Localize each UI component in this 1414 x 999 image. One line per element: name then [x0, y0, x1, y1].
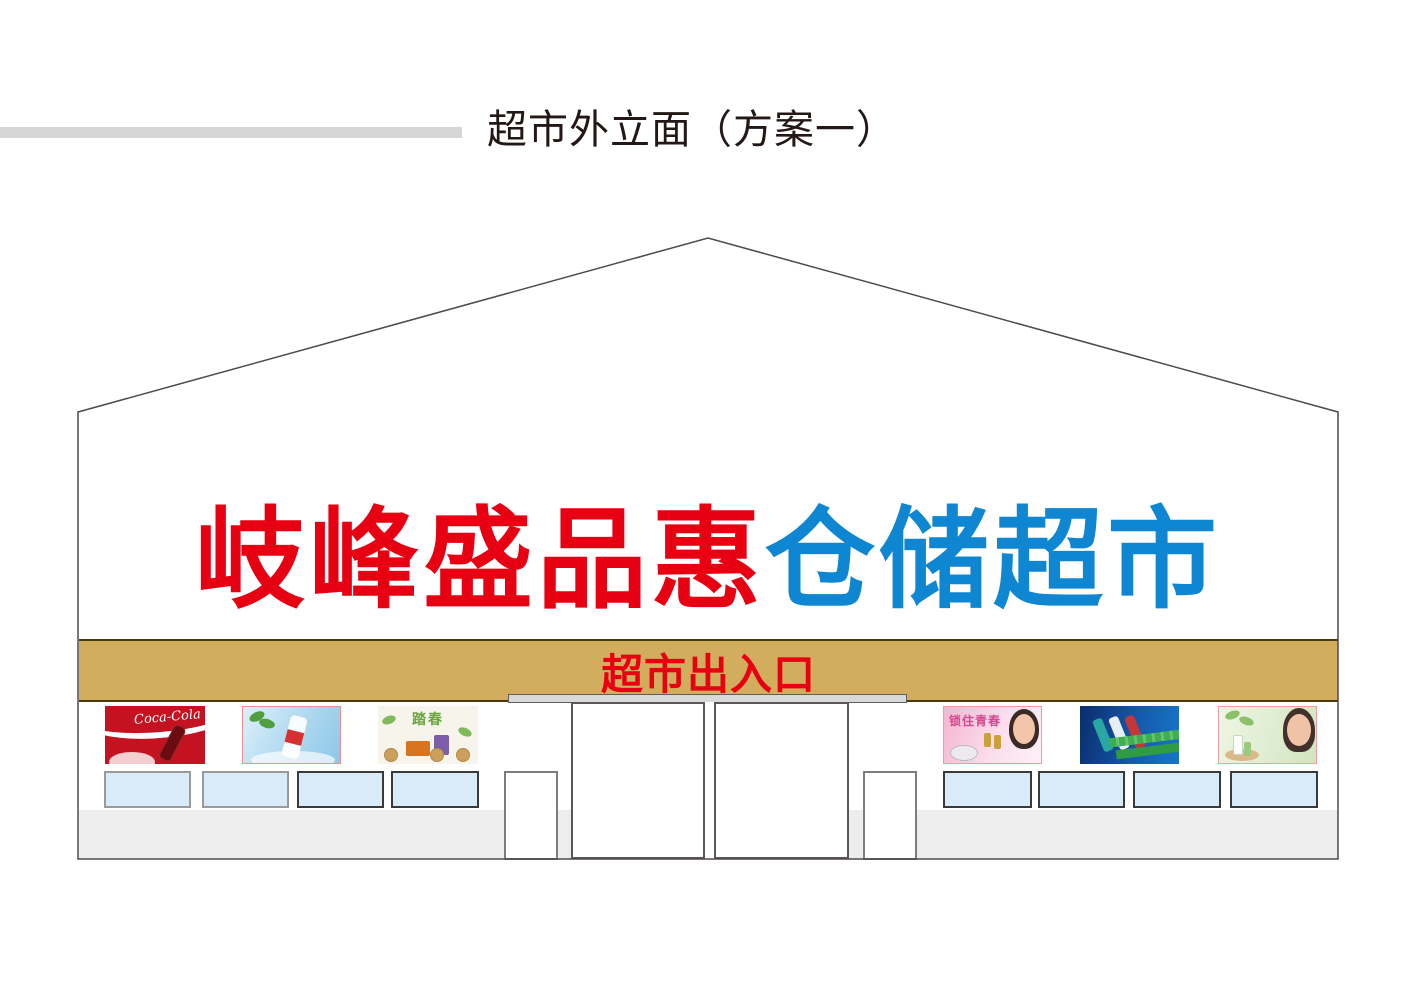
poster-pastry: 踏春	[378, 706, 478, 764]
cookie-graphic	[430, 748, 444, 762]
window	[104, 771, 191, 808]
gold-bottle-graphic	[994, 735, 1001, 749]
model-face-graphic	[1013, 714, 1035, 744]
water-bottle-label-graphic	[285, 729, 305, 746]
window	[1133, 771, 1221, 808]
window	[202, 771, 289, 808]
poster-skincare	[1218, 706, 1317, 764]
splash-graphic	[251, 751, 335, 764]
pastry-box-graphic	[406, 741, 430, 756]
cream-jar-graphic	[950, 745, 978, 761]
window	[1230, 771, 1318, 808]
cosmetics-title-text: 锁住青春	[949, 712, 1001, 729]
entrance-band: 超市出入口	[79, 639, 1338, 702]
facade-design-canvas: 超市外立面（方案一） 超市出入口 岐峰盛品惠仓储超市 Coca-Cola 踏春	[0, 0, 1414, 999]
leaf-graphic	[1238, 715, 1255, 728]
ice-graphic	[109, 752, 155, 764]
gold-bottle-graphic	[984, 733, 991, 747]
skincare-bottle-graphic	[1244, 742, 1251, 756]
window	[943, 771, 1032, 808]
poster-cola: Coca-Cola	[105, 706, 205, 764]
store-sign: 岐峰盛品惠仓储超市	[78, 506, 1338, 621]
title-rule-bar	[0, 127, 462, 138]
poster-water	[242, 706, 341, 764]
leaf-graphic	[258, 717, 276, 730]
model-face-graphic	[1287, 714, 1311, 746]
side-pillar-left	[504, 771, 558, 860]
sign-blue-text: 仓储超市	[765, 506, 1221, 616]
window	[297, 771, 384, 808]
poster-cosmetics: 锁住青春	[943, 706, 1042, 764]
window	[391, 771, 479, 808]
cookie-graphic	[384, 748, 398, 762]
window	[1038, 771, 1125, 808]
entrance-label: 超市出入口	[601, 639, 816, 702]
page-title: 超市外立面（方案一）	[487, 104, 897, 156]
door-panel-left	[571, 702, 705, 859]
sign-red-text: 岐峰盛品惠	[195, 506, 765, 616]
skincare-bottle-graphic	[1233, 735, 1243, 755]
side-pillar-right	[863, 771, 917, 860]
door-panel-right	[714, 702, 849, 859]
cookie-graphic	[456, 748, 470, 762]
poster-toothpaste	[1080, 706, 1179, 764]
